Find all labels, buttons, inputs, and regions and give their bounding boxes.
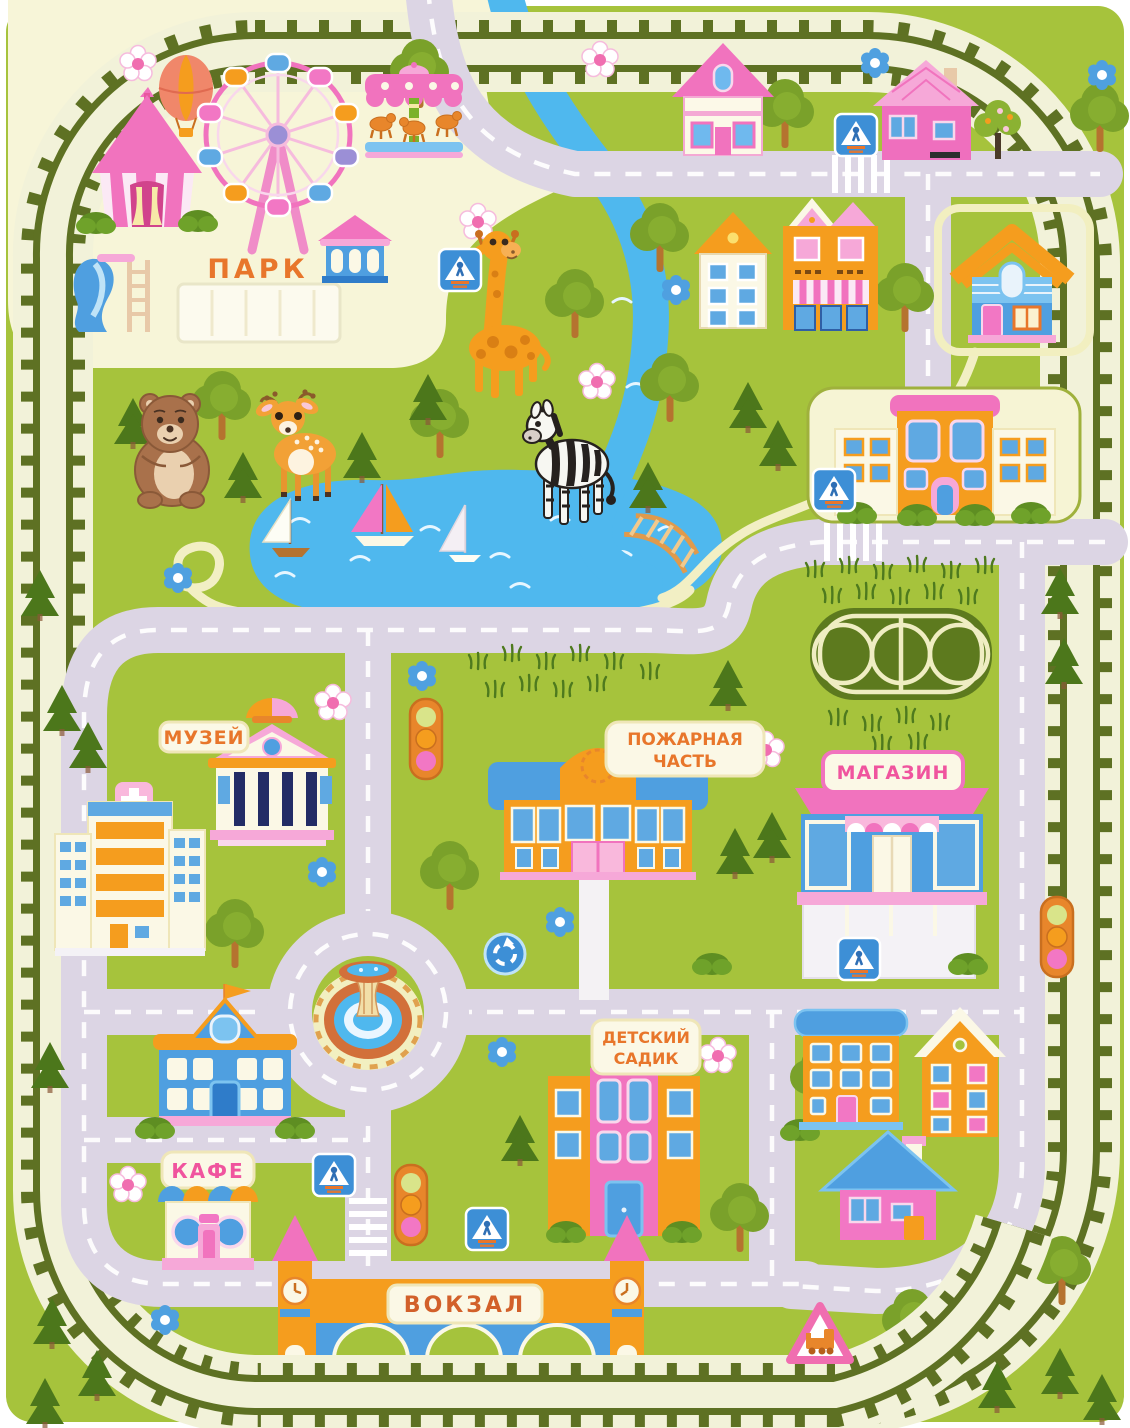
traffic-light-1 xyxy=(410,699,442,779)
shop-label: МАГАЗИН xyxy=(837,762,950,784)
crossing-sign-park xyxy=(439,249,481,291)
play-mat-scene: ПАРК xyxy=(0,0,1130,1428)
museum-label: МУЗЕЙ xyxy=(164,726,245,749)
shop-sign: МАГАЗИН xyxy=(823,752,963,792)
fire-station-sign: ПОЖАРНАЯ ЧАСТЬ xyxy=(606,722,764,776)
crossing-sign-kindergarten xyxy=(466,1208,508,1250)
roundabout-sign xyxy=(485,934,525,974)
cafe: КАФЕ xyxy=(158,1152,258,1270)
museum-sign: МУЗЕЙ xyxy=(160,722,248,752)
cafe-label: КАФЕ xyxy=(171,1159,244,1183)
station-sign: ВОКЗАЛ xyxy=(388,1285,542,1323)
crossing-sign-shop xyxy=(838,938,880,980)
station-label: ВОКЗАЛ xyxy=(404,1293,526,1318)
kindergarten-label-2: САДИК xyxy=(614,1049,679,1068)
apartment-orange-blue-roof xyxy=(795,1010,907,1130)
crossing-sign-top xyxy=(835,114,877,156)
crossing-sign-school xyxy=(813,469,855,511)
traffic-light-3 xyxy=(395,1165,427,1245)
traffic-light-2 xyxy=(1041,897,1073,977)
kindergarten-label-1: ДЕТСКИЙ xyxy=(602,1028,690,1047)
fire-station-label-1: ПОЖАРНАЯ xyxy=(627,730,743,750)
shop: МАГАЗИН xyxy=(795,752,989,905)
play-mat: ПАРК xyxy=(0,0,1130,1428)
crossing-sign-cafe xyxy=(313,1154,355,1196)
basketball-court xyxy=(810,608,992,700)
park-parking xyxy=(178,284,340,342)
fountain-roundabout xyxy=(290,934,446,1090)
park-label: ПАРК xyxy=(207,254,308,285)
fire-station-label-2: ЧАСТЬ xyxy=(653,752,717,772)
bear xyxy=(135,394,209,508)
kindergarten-sign: ДЕТСКИЙ САДИК xyxy=(592,1020,700,1074)
